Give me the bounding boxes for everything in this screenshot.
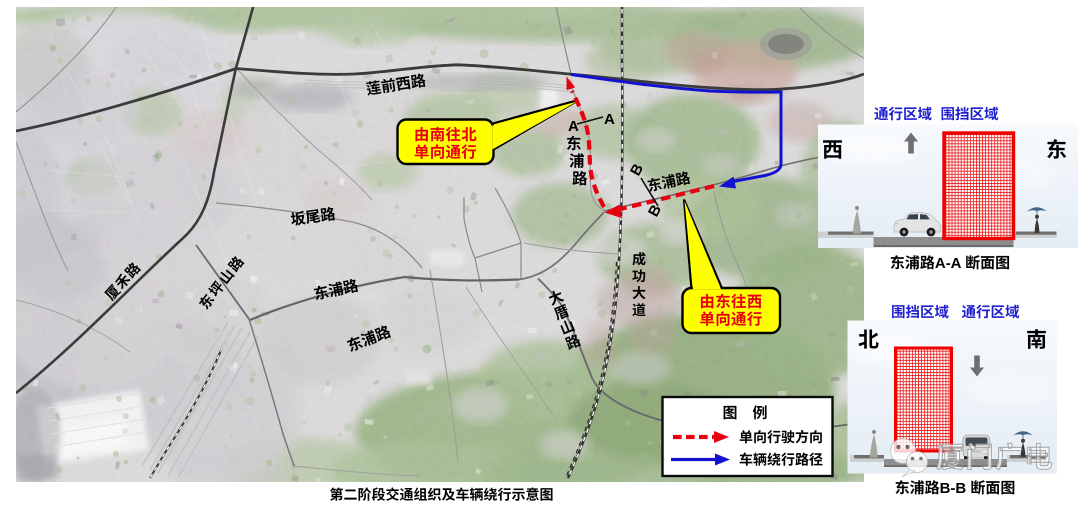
svg-text:厦门广电: 厦门广电 (936, 442, 1054, 473)
svg-text:大: 大 (632, 285, 646, 301)
svg-text:东浦路A-A 断面图: 东浦路A-A 断面图 (890, 255, 1010, 272)
svg-text:北: 北 (858, 329, 879, 352)
svg-text:浦: 浦 (569, 153, 585, 171)
svg-text:车辆绕行路径: 车辆绕行路径 (739, 452, 823, 468)
svg-text:A: A (568, 118, 579, 135)
svg-text:由东往西: 由东往西 (699, 293, 762, 311)
svg-text:东: 东 (566, 135, 582, 153)
svg-text:南: 南 (1026, 329, 1047, 352)
svg-text:单向行驶方向: 单向行驶方向 (739, 429, 823, 445)
svg-text:图 例: 图 例 (722, 405, 767, 422)
svg-text:围挡区域: 围挡区域 (941, 106, 999, 123)
svg-text:单向通行: 单向通行 (414, 144, 477, 162)
svg-text:西: 西 (822, 139, 843, 162)
svg-text:东浦路B-B 断面图: 东浦路B-B 断面图 (895, 480, 1016, 497)
svg-text:道: 道 (632, 302, 646, 318)
svg-text:路: 路 (572, 170, 588, 188)
svg-text:A: A (604, 111, 615, 128)
svg-text:通行区域: 通行区域 (874, 106, 932, 123)
svg-text:由南往北: 由南往北 (414, 126, 477, 144)
svg-text:单向通行: 单向通行 (699, 311, 762, 329)
svg-text:通行区域: 通行区域 (962, 304, 1020, 321)
svg-text:功: 功 (632, 268, 646, 284)
svg-text:成: 成 (632, 251, 646, 267)
svg-text:东: 东 (1046, 138, 1067, 162)
svg-text:第二阶段交通组织及车辆绕行示意图: 第二阶段交通组织及车辆绕行示意图 (330, 487, 554, 503)
svg-text:围挡区域: 围挡区域 (891, 304, 949, 321)
